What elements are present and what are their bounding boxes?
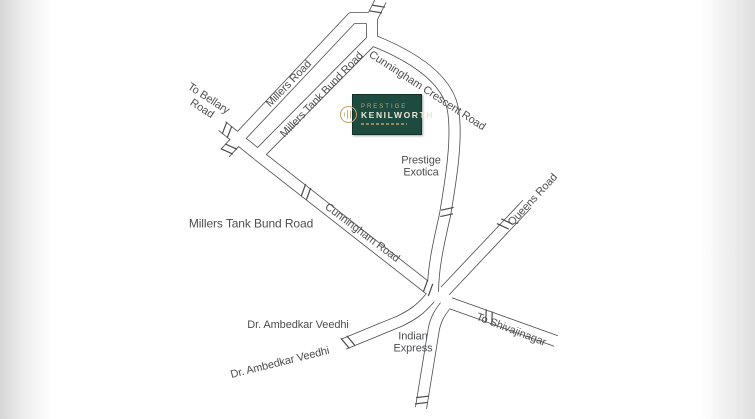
location-map: To Bellary Road Millers Road Millers Tan… — [0, 0, 755, 419]
logo-tagline-rule — [361, 123, 407, 125]
label-indian-express: Indian Express — [393, 331, 432, 356]
prestige-kenilworth-logo: PRESTIGE KENILWORTH — [352, 94, 422, 135]
label-millers-tank-bund-road: Millers Tank Bund Road — [189, 217, 313, 230]
logo-wordmark: PRESTIGE KENILWORTH — [361, 104, 434, 125]
logo-project-text: KENILWORTH — [361, 111, 434, 121]
label-dr-ambedkar-veedhi-horizontal: Dr. Ambedkar Veedhi — [247, 319, 348, 331]
label-prestige-exotica: Prestige Exotica — [401, 155, 441, 180]
road-continuation-ticks — [221, 5, 513, 404]
prestige-medallion-icon — [340, 106, 357, 123]
